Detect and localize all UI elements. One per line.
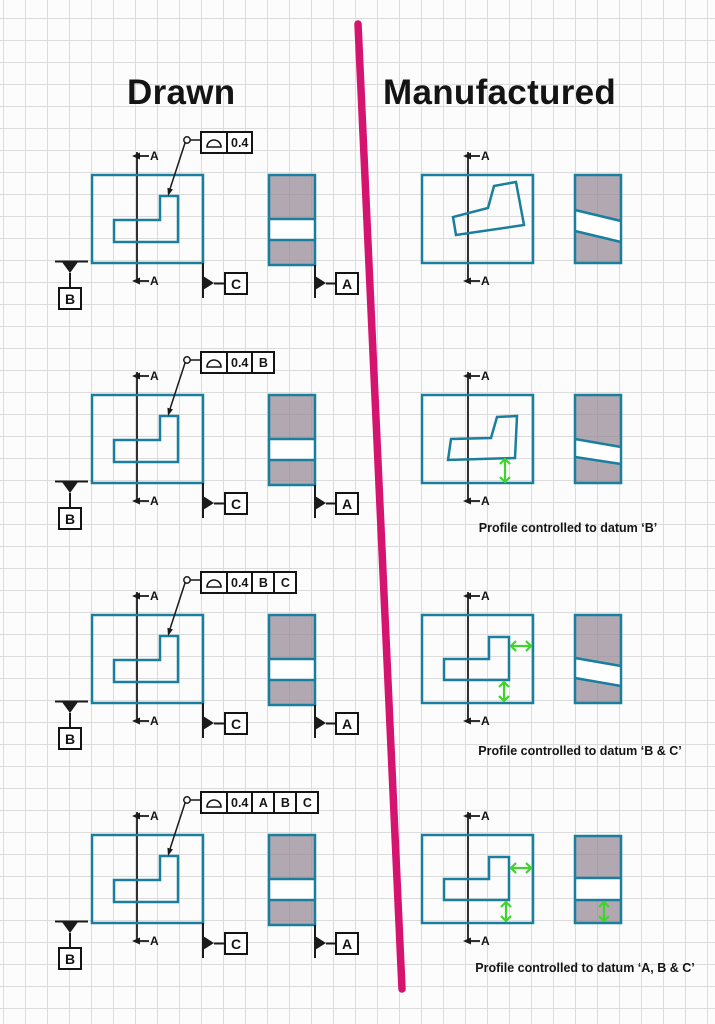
section-label: A (150, 809, 159, 823)
section-label: A (150, 934, 159, 948)
drawn-row-1 (55, 137, 336, 298)
profile-of-a-surface-icon (202, 133, 226, 152)
fcf-datum-ref: B (251, 353, 273, 372)
section-label: A (481, 494, 490, 508)
feature-control-frame-row-3: 0.4 B C (200, 571, 297, 594)
fcf-datum-ref: C (295, 793, 317, 812)
green-deviation-arrows (499, 641, 531, 701)
fcf-datum-ref: B (251, 573, 273, 592)
datum-box-b: B (58, 947, 82, 970)
feature-control-frame-row-4: 0.4 A B C (200, 791, 319, 814)
section-label: A (481, 934, 490, 948)
section-label: A (481, 809, 490, 823)
manufactured-row-1 (422, 152, 621, 285)
profile-of-a-surface-icon (202, 353, 226, 372)
datum-box-a: A (335, 932, 359, 955)
datum-box-a: A (335, 492, 359, 515)
datum-box-b: B (58, 287, 82, 310)
feature-control-frame-row-1: 0.4 (200, 131, 253, 154)
datum-box-c: C (224, 272, 248, 295)
datum-box-b: B (58, 507, 82, 530)
column-title-manufactured: Manufactured (383, 73, 616, 113)
green-deviation-arrows (501, 863, 531, 921)
section-label: A (150, 274, 159, 288)
column-title-drawn: Drawn (127, 73, 235, 113)
section-label: A (150, 369, 159, 383)
fcf-datum-ref: C (273, 573, 295, 592)
datum-box-a: A (335, 272, 359, 295)
fcf-tolerance-value: 0.4 (226, 573, 251, 592)
caption-row-2: Profile controlled to datum ‘B’ (479, 521, 657, 535)
profile-of-a-surface-icon (202, 793, 226, 812)
caption-row-3: Profile controlled to datum ‘B & C’ (478, 744, 681, 758)
drawn-row-2 (55, 357, 336, 518)
drawn-row-4 (55, 797, 336, 958)
fcf-tolerance-value: 0.4 (226, 353, 251, 372)
manufactured-row-4 (422, 812, 621, 945)
feature-control-frame-row-2: 0.4 B (200, 351, 275, 374)
section-label: A (150, 149, 159, 163)
fcf-datum-ref: B (273, 793, 295, 812)
fcf-tolerance-value: 0.4 (226, 793, 251, 812)
profile-of-a-surface-icon (202, 573, 226, 592)
gdt-profile-tolerance-diagram: Drawn Manufactured A A A A A A A A A A A… (0, 0, 715, 1024)
section-label: A (481, 369, 490, 383)
drawn-row-3 (55, 577, 336, 738)
datum-box-c: C (224, 932, 248, 955)
fcf-tolerance-value: 0.4 (226, 133, 251, 152)
section-label: A (150, 589, 159, 603)
caption-row-4: Profile controlled to datum ‘A, B & C’ (475, 961, 694, 975)
section-label: A (150, 494, 159, 508)
section-label: A (481, 714, 490, 728)
datum-box-c: C (224, 492, 248, 515)
green-deviation-arrow-vertical (500, 459, 510, 482)
section-label: A (150, 714, 159, 728)
fcf-datum-ref: A (251, 793, 273, 812)
section-label: A (481, 589, 490, 603)
manufactured-row-2 (422, 372, 621, 505)
section-label: A (481, 149, 490, 163)
datum-box-b: B (58, 727, 82, 750)
manufactured-row-3 (422, 592, 621, 725)
divider-line (358, 24, 402, 989)
datum-box-c: C (224, 712, 248, 735)
datum-box-a: A (335, 712, 359, 735)
section-label: A (481, 274, 490, 288)
